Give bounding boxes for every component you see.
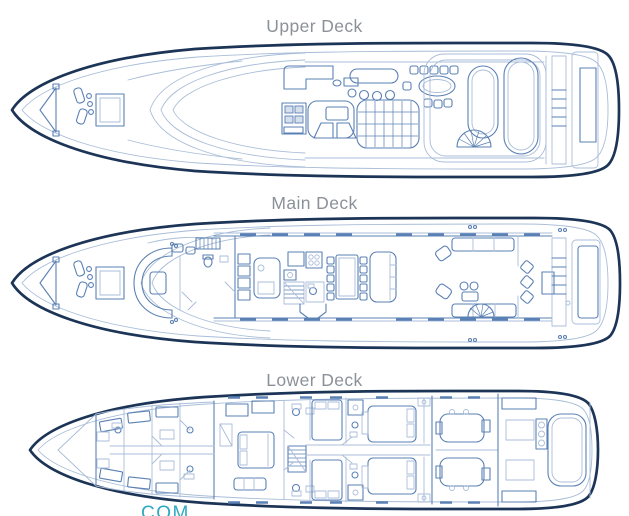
lower-deck-crew-quarters	[58, 401, 214, 499]
lower-deck-engine-room	[436, 394, 498, 506]
watermark-text: COM	[141, 503, 190, 516]
lower-deck-master-cabin	[220, 401, 274, 490]
main-deck-stairs	[284, 282, 326, 318]
main-deck-stern	[552, 238, 600, 326]
lower-deck-garage	[502, 398, 590, 502]
upper-deck-stern	[546, 52, 598, 168]
upper-deck-plan	[12, 43, 619, 177]
main-deck-dining	[327, 252, 396, 302]
upper-deck-helm-station	[282, 103, 306, 134]
main-deck-captain-cabin	[180, 236, 235, 318]
main-deck-plan	[12, 218, 620, 348]
upper-deck-bow-area	[40, 61, 242, 159]
upper-deck-hull	[12, 43, 619, 177]
deck-plans-canvas	[0, 0, 629, 516]
upper-deck-settee	[308, 101, 356, 138]
lower-deck-plan	[30, 391, 598, 509]
main-deck-salon	[434, 236, 554, 318]
upper-deck-stairs-fan	[457, 130, 491, 147]
lower-deck-stairs-bathrooms	[284, 401, 314, 499]
upper-deck-aft-lounge	[424, 54, 546, 162]
lower-deck-guest-cabins	[306, 396, 432, 504]
deck-plans-page: Upper Deck Main Deck Lower Deck	[0, 0, 629, 516]
upper-deck-bar	[284, 66, 398, 101]
main-deck-hull	[12, 218, 620, 348]
main-deck-cleats	[171, 226, 567, 342]
main-deck-walls	[214, 233, 552, 321]
upper-deck-sunpad-grid	[357, 100, 419, 148]
